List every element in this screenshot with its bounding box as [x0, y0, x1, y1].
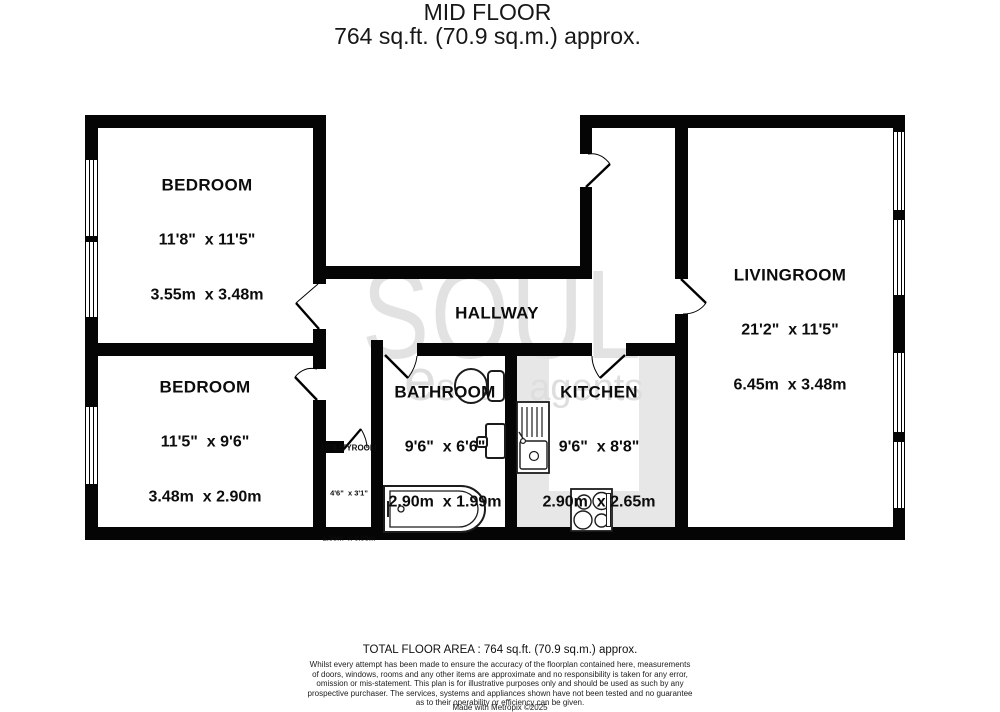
room-dim-imperial: 11'5" x 9'6" — [149, 433, 262, 452]
room-dim-imperial: 21'2" x 11'5" — [734, 321, 847, 340]
bedroom1-label: BEDROOM 11'8" x 11'5" 3.55m x 3.48m — [151, 140, 264, 341]
room-name: HALLWAY — [455, 304, 539, 323]
room-name: BEDROOM — [151, 176, 264, 195]
kitchen-label: KITCHEN 9'6" x 8'8" 2.90m x 2.65m — [543, 347, 656, 548]
room-dim-metric: 6.45m x 3.48m — [734, 376, 847, 395]
room-name: KITCHEN — [543, 383, 656, 402]
room-dim-imperial: 11'8" x 11'5" — [151, 231, 264, 250]
room-dim-metric: 3.48m x 2.90m — [149, 488, 262, 507]
room-name: UTILITYROOM — [321, 444, 376, 453]
door-bedroom2 — [295, 368, 317, 400]
utilityroom-label: UTILITYROOM 4'6" x 3'1" 1.38m x 0.93m — [321, 408, 376, 579]
room-dim-metric: 3.55m x 3.48m — [151, 286, 264, 305]
room-name: LIVINGROOM — [734, 266, 847, 285]
room-dim-imperial: 9'6" x 6'6" — [389, 438, 502, 457]
room-dim-metric: 1.38m x 0.93m — [321, 534, 376, 543]
room-dim-metric: 2.90m x 1.99m — [389, 493, 502, 512]
bedroom2-label: BEDROOM 11'5" x 9'6" 3.48m x 2.90m — [149, 342, 262, 543]
hallway-label: HALLWAY — [455, 268, 539, 359]
door-bedroom1 — [296, 284, 319, 329]
livingroom-label: LIVINGROOM 21'2" x 11'5" 6.45m x 3.48m — [734, 230, 847, 431]
room-dim-imperial: 4'6" x 3'1" — [321, 489, 376, 498]
room-dim-imperial: 9'6" x 8'8" — [543, 438, 656, 457]
room-name: BEDROOM — [149, 378, 262, 397]
bathroom-label: BATHROOM 9'6" x 6'6" 2.90m x 1.99m — [389, 347, 502, 548]
door-entry — [586, 154, 610, 187]
door-livingroom — [681, 279, 706, 314]
room-dim-metric: 2.90m x 2.65m — [543, 493, 656, 512]
room-name: BATHROOM — [389, 383, 502, 402]
